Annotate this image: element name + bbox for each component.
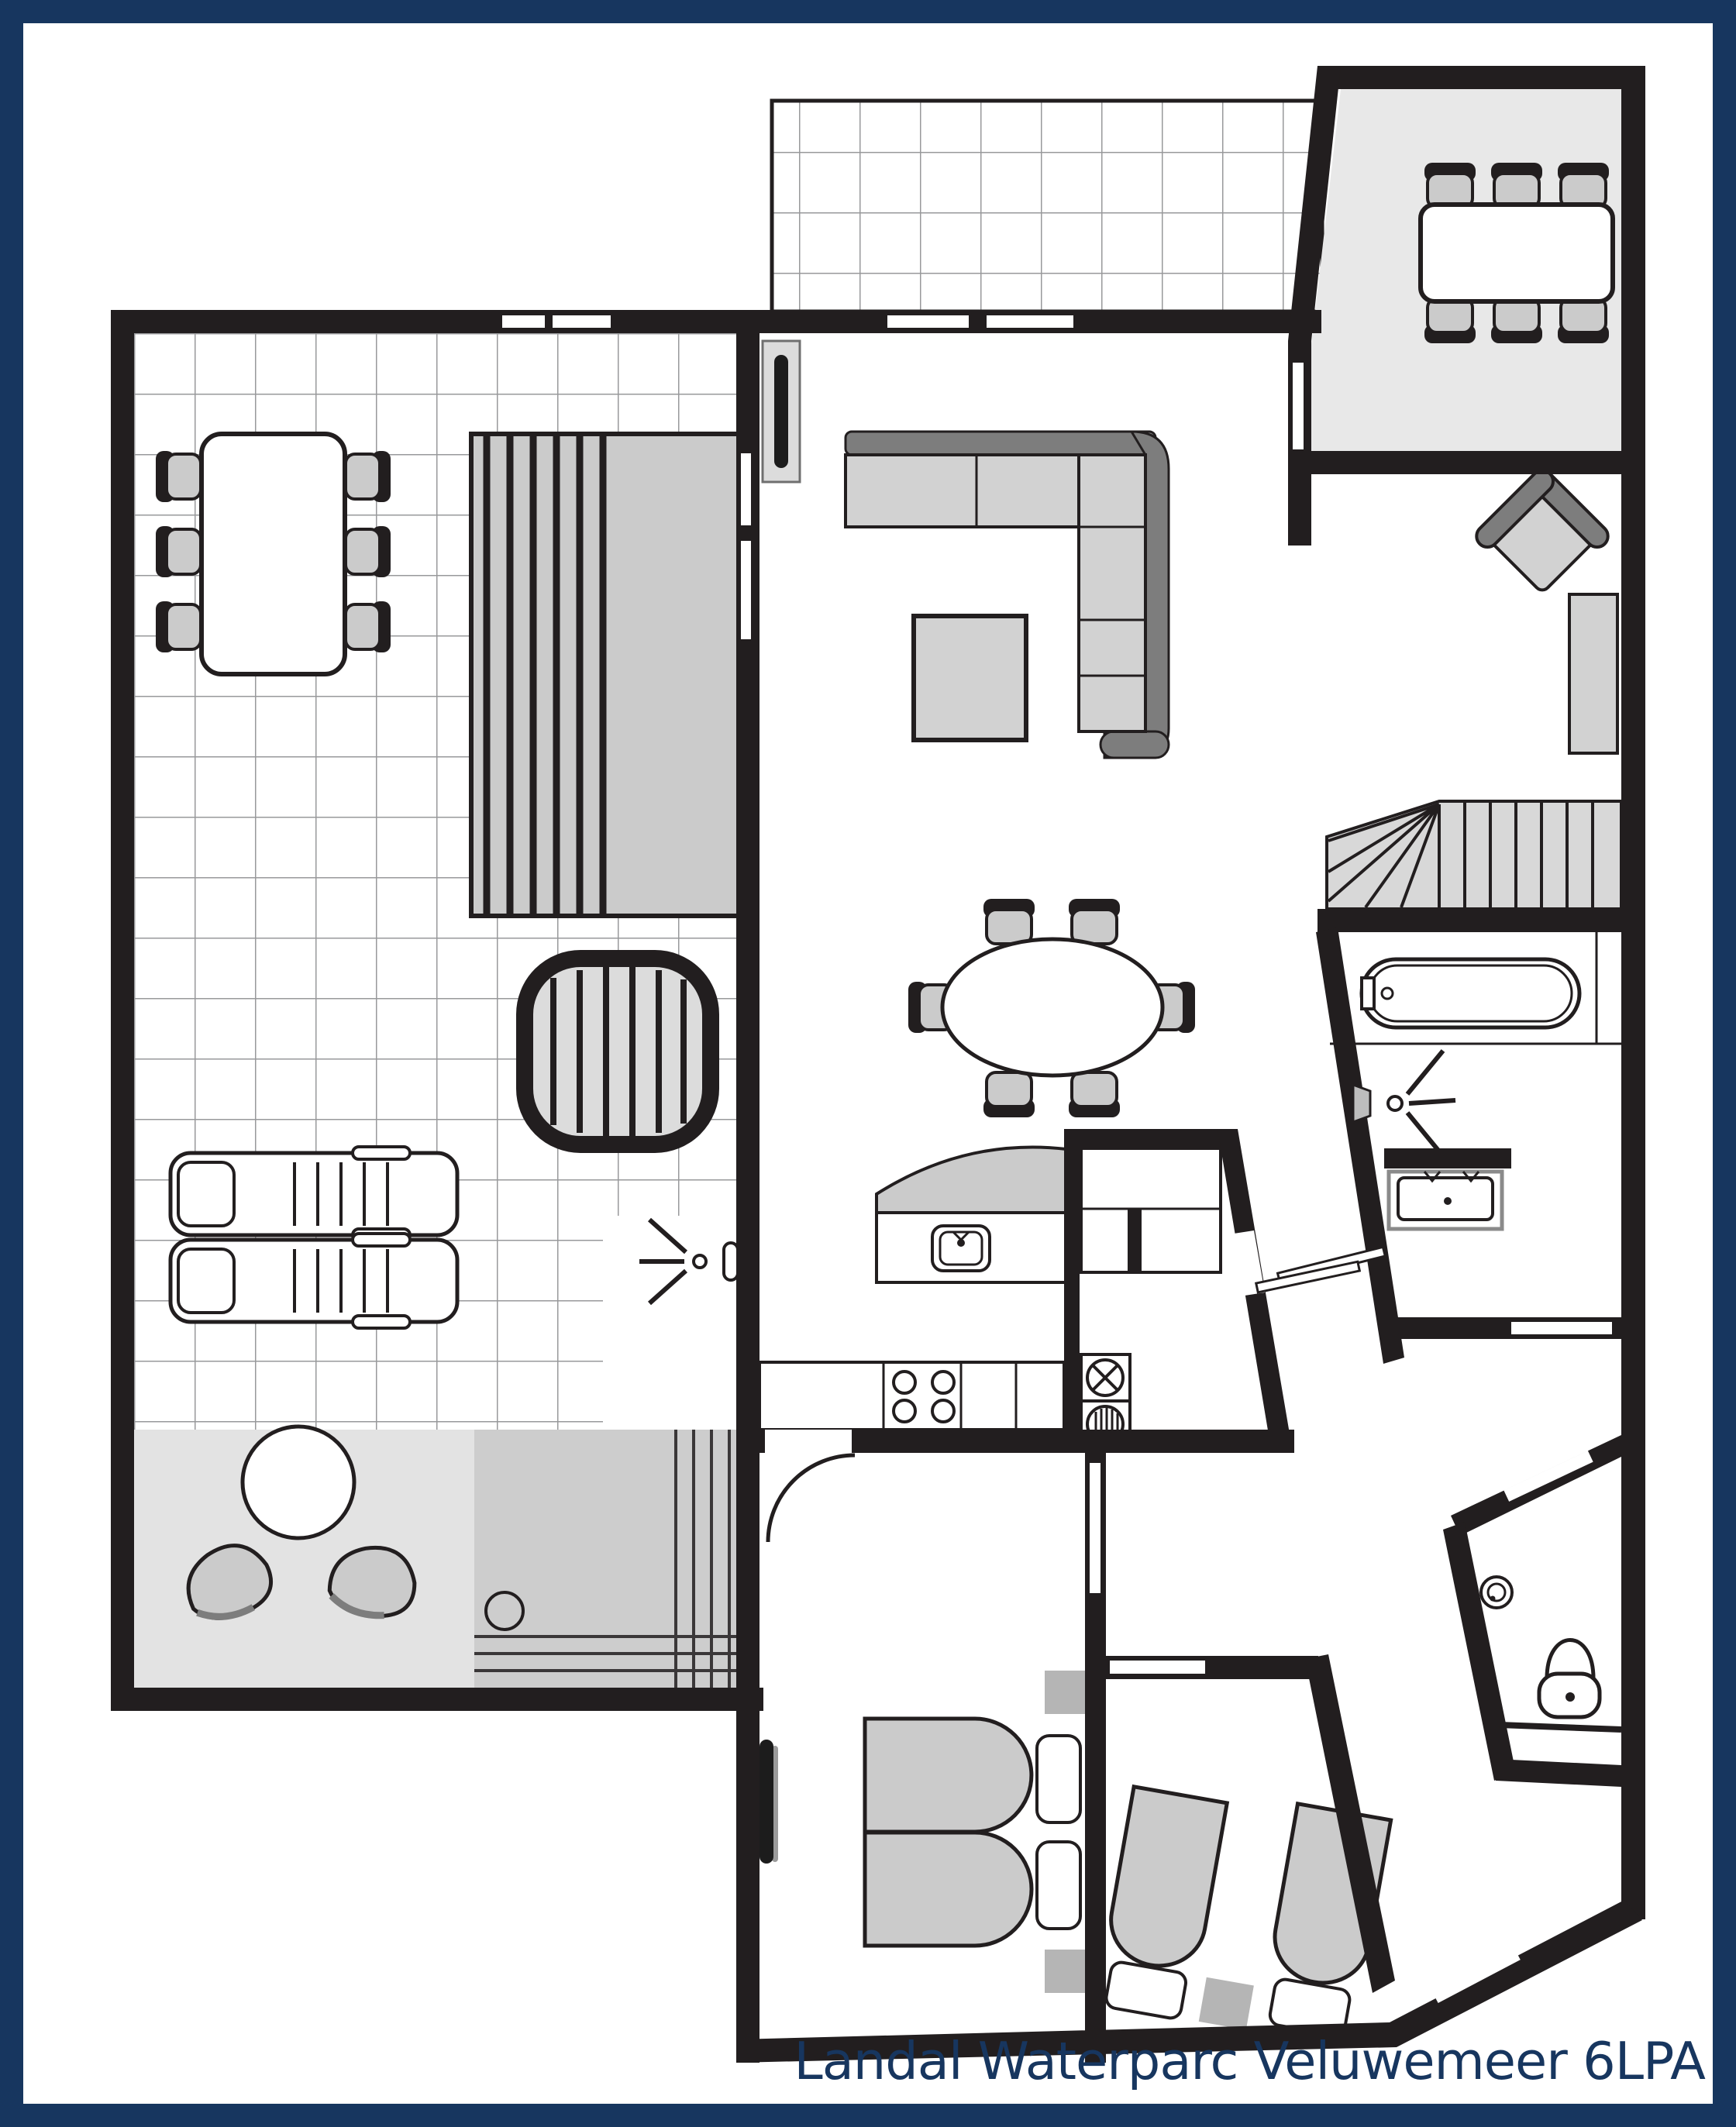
sink-icon [932, 1226, 990, 1271]
chair-icon [1558, 163, 1609, 208]
chair-icon [1424, 298, 1476, 343]
floor-plan-page: Landal Waterparc Veluwemeer 6LPA [0, 0, 1736, 2127]
dining-table [1421, 205, 1613, 301]
wall-left-outer [111, 310, 134, 1711]
lounge-table [243, 1427, 354, 1538]
hot-tub [525, 959, 711, 1144]
chair-icon [346, 601, 391, 652]
pillow [1037, 1736, 1080, 1822]
door-opening [1511, 1322, 1612, 1334]
chair-icon [346, 526, 391, 577]
window [502, 315, 545, 328]
washing-machine-icon [1087, 1360, 1123, 1396]
wall-left-bottom [111, 1688, 763, 1711]
sun-lounger [170, 1234, 457, 1328]
wall-top [111, 310, 1321, 333]
washbasin-icon [1389, 1172, 1502, 1229]
wall-basin-stub [1384, 1148, 1511, 1168]
chair-icon [983, 1072, 1035, 1117]
window [741, 453, 751, 525]
chair-icon [156, 451, 201, 502]
outdoor-dining-set [156, 434, 391, 674]
nightstand [1199, 1977, 1254, 2030]
sauna-benches [471, 434, 739, 916]
chair-icon [983, 899, 1035, 944]
wall-under-stairs [1317, 909, 1621, 932]
entrance-door-leaf [774, 355, 788, 468]
wall-closet-top [1064, 1129, 1224, 1148]
shower-cabin [474, 1430, 740, 1688]
wall-right-outer [1621, 66, 1645, 1919]
sun-lounger [170, 1147, 457, 1241]
coffee-table [914, 616, 1026, 740]
window [987, 315, 1073, 328]
window [741, 541, 751, 639]
floor-plan-drawing [0, 0, 1736, 2127]
chair-icon [1069, 899, 1120, 944]
nightstand [1045, 1950, 1085, 1993]
plan-title: Landal Waterparc Veluwemeer 6LPA [794, 2031, 1705, 2091]
chair-icon [1069, 1072, 1120, 1117]
door-opening [1090, 1463, 1100, 1593]
shower-fixture [1353, 1085, 1370, 1122]
chair-icon [1491, 163, 1542, 208]
window [1293, 363, 1304, 449]
chair-icon [1491, 298, 1542, 343]
chair-icon [156, 601, 201, 652]
bedroom-door-leaf [759, 1740, 773, 1864]
chair-icon [156, 526, 201, 577]
wall-conservatory-bottom [1288, 451, 1621, 474]
window [887, 315, 969, 328]
wall-kitchen-right [1064, 1129, 1080, 1431]
nightstand [1045, 1671, 1085, 1714]
wall-conservatory-top [1317, 66, 1645, 89]
chair-icon [1424, 163, 1476, 208]
outdoor-table [201, 434, 345, 674]
oval-table [942, 939, 1162, 1076]
door-opening [1110, 1661, 1205, 1674]
conservatory-dining-set [1421, 163, 1613, 343]
chair-icon [346, 451, 391, 502]
pillow [1037, 1842, 1080, 1929]
terrace-top-tiled-floor [772, 101, 1322, 311]
drain-icon [486, 1592, 523, 1630]
shower-corner-floor [603, 1216, 740, 1430]
window [553, 315, 611, 328]
wall-hall-stub [1288, 474, 1311, 546]
sideboard [1569, 594, 1617, 753]
chair-icon [1558, 298, 1609, 343]
bath-tap-icon [1362, 978, 1374, 1009]
bathtub [1362, 959, 1579, 1027]
door-opening [765, 1430, 852, 1453]
